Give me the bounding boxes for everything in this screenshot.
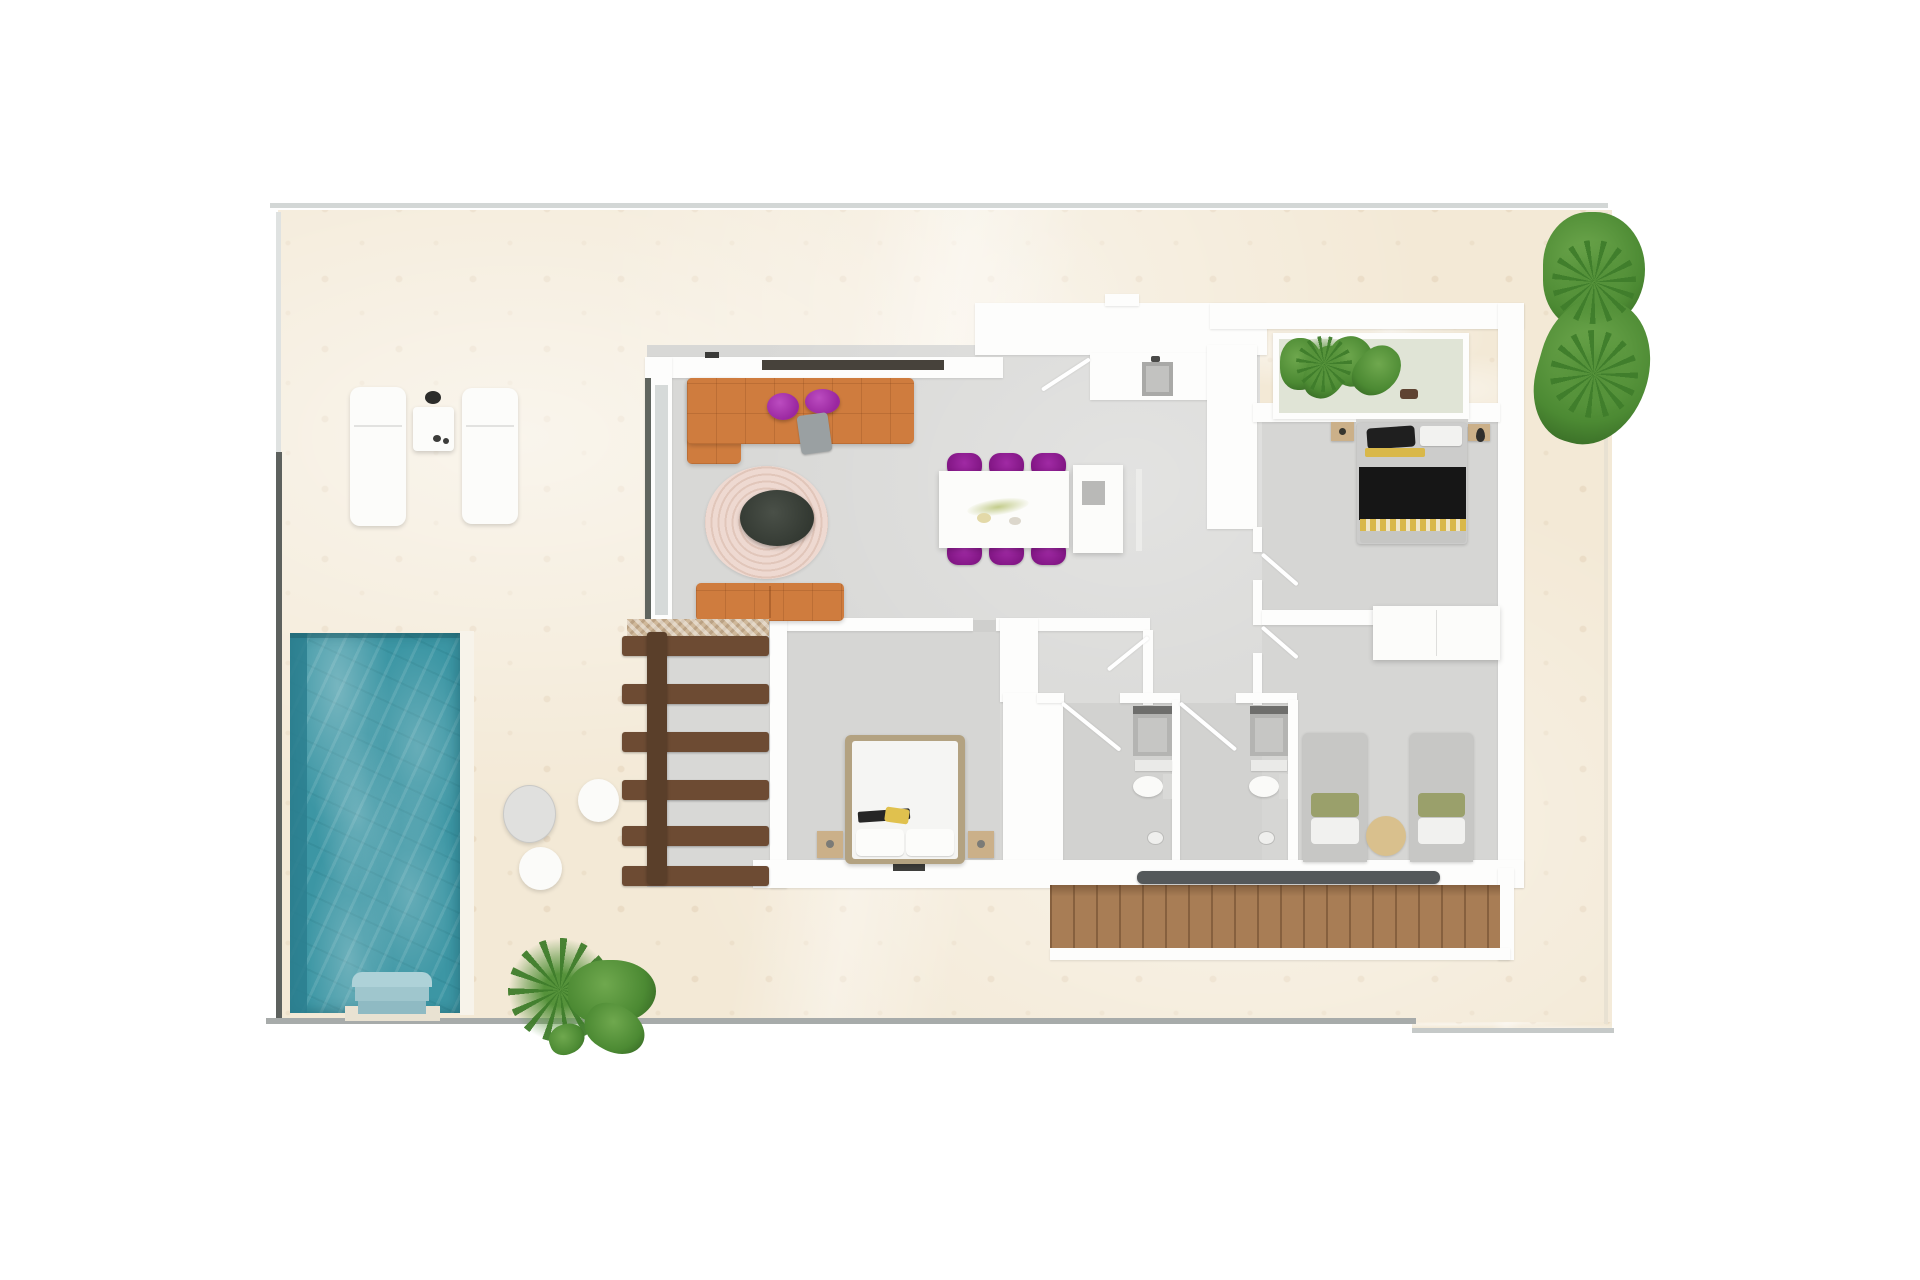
master-door-threshold: [973, 620, 996, 632]
pool-top-lip: [290, 633, 460, 638]
sofa-two-seater: [696, 583, 844, 621]
twin-pillow-white: [1311, 818, 1359, 844]
floor-plan-canvas: [0, 0, 1920, 1280]
master-bed: [845, 735, 965, 864]
stair-side-wall: [1498, 868, 1514, 960]
twin-pillow-white: [1418, 818, 1465, 844]
bath2-vanity: [1251, 760, 1287, 771]
bath-top-wall-seg-2: [1120, 693, 1180, 703]
kitchen-sink: [1142, 362, 1173, 396]
table-centerpiece-greens: [966, 495, 1030, 519]
table-cup-2: [443, 438, 449, 444]
closet-block: [1003, 693, 1063, 863]
door-handle-mark: [705, 352, 719, 358]
pergola-slat: [622, 732, 769, 752]
grey-throw-blanket: [796, 412, 832, 455]
bath1-floor-drain: [1147, 831, 1164, 845]
purple-pouf-1: [767, 393, 799, 420]
corner-tree-burst: [1552, 240, 1636, 324]
bath2-toilet-tank: [1279, 774, 1288, 799]
bed-fringe: [1360, 519, 1466, 531]
wardrobe-dresser: [1373, 606, 1500, 660]
pool: [290, 633, 460, 1013]
pergola-slat: [622, 684, 769, 704]
bath2-shower: [1250, 706, 1288, 756]
double-bed: [1356, 419, 1468, 545]
master-left-wall: [770, 618, 787, 888]
terrace-left-fence: [276, 452, 282, 1020]
table-cup-1: [433, 435, 441, 442]
coffee-table: [740, 490, 814, 546]
kitchen-tall-cabinets: [1207, 345, 1257, 529]
planter-plant-burst: [1296, 336, 1352, 392]
dining-table: [939, 471, 1069, 548]
twin-room-round-rug: [1366, 816, 1406, 856]
lounger-backrest-line: [466, 425, 514, 427]
patio-table-large: [503, 785, 556, 843]
island-side-strip: [1136, 469, 1142, 551]
pergola-slat: [622, 826, 769, 846]
master-nightstand-left: [817, 831, 843, 858]
pergola-slat: [622, 866, 769, 886]
right-wing-right-wall: [1498, 303, 1524, 887]
bath1-toilet-tank: [1163, 774, 1172, 799]
bath1-shower: [1133, 706, 1172, 756]
bed-black-pillow: [1366, 425, 1415, 449]
kitchen-wall-bump: [1105, 294, 1139, 306]
sun-lounger-right: [462, 388, 518, 524]
pergola-slat: [622, 636, 769, 656]
bath-right-wall: [1288, 700, 1298, 862]
bedrooms-divider-wall: [1262, 610, 1374, 625]
island-cooktop: [1082, 481, 1105, 505]
master-nightstand-right: [968, 831, 994, 858]
pendant-lamp: [1476, 428, 1485, 442]
master-pillow-right: [906, 829, 954, 856]
table-dish-2: [1009, 517, 1021, 525]
twin-bed-right: [1410, 733, 1473, 862]
twin-pillow-olive: [1418, 793, 1465, 817]
hall-wall-seg-2: [1253, 580, 1262, 625]
bed-yellow-band: [1365, 448, 1425, 457]
terrace-top-edge: [270, 203, 1608, 208]
block-right-of-master: [1000, 618, 1038, 702]
bath2-toilet: [1249, 776, 1279, 797]
sliding-door-left-frame: [645, 378, 651, 620]
bath1-toilet: [1133, 776, 1163, 797]
under-stairs-strip: [1050, 948, 1510, 960]
sliding-door-top: [762, 360, 944, 370]
master-pillow-left: [856, 829, 904, 856]
nightstand-left: [1331, 422, 1354, 441]
bath1-vanity: [1135, 760, 1172, 771]
kitchen-faucet: [1151, 356, 1160, 362]
parasol-base: [425, 391, 441, 404]
sliding-door-left-glass: [655, 385, 668, 615]
planter-deco-stone: [1400, 389, 1418, 399]
pergola-slat: [622, 780, 769, 800]
pool-edge-dark: [290, 633, 307, 1013]
exterior-stairs: [1050, 885, 1500, 948]
bath2-floor-drain: [1258, 831, 1275, 845]
bath-divider-wall: [1172, 700, 1180, 862]
bottom-wall-window-mark: [893, 864, 925, 871]
bath-top-wall-seg-1: [1037, 693, 1064, 703]
pool-steps: [352, 972, 432, 1016]
pool-coping: [460, 631, 474, 1015]
terrace-left-edge-light: [276, 212, 281, 454]
right-wing-top-wall: [1210, 303, 1524, 329]
stair-handrail: [1137, 871, 1440, 884]
master-yellow-pillow: [884, 806, 910, 824]
purple-pouf-2: [805, 389, 840, 414]
terrace-bottom-edge-right: [1412, 1028, 1614, 1033]
bed-white-linens: [1420, 426, 1462, 446]
pergola-beam: [647, 632, 667, 884]
twin-bed-left: [1303, 733, 1367, 862]
sun-lounger-left: [350, 387, 406, 526]
lounger-backrest-line: [354, 425, 402, 427]
bed-foot-strip: [1360, 531, 1466, 543]
hall-wall-seg-1: [1253, 527, 1262, 552]
kitchen-island: [1073, 465, 1123, 553]
patio-table-small-right: [578, 779, 619, 822]
twin-pillow-olive: [1311, 793, 1359, 817]
patio-table-small-bottom: [519, 847, 562, 890]
bed-black-blanket: [1359, 467, 1466, 520]
lounger-side-table: [413, 407, 454, 451]
table-dish-1: [977, 513, 991, 523]
